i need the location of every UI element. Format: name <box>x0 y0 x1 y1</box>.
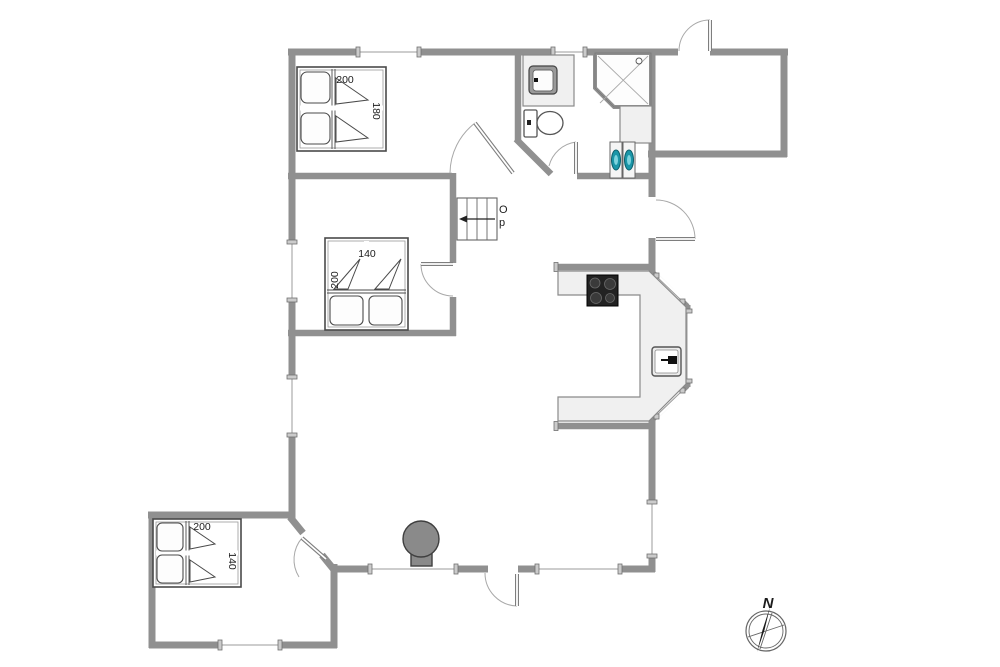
burner <box>605 279 616 290</box>
kitchen-sink <box>652 347 681 376</box>
kitchen <box>558 271 686 421</box>
door-main-entrance <box>485 573 517 606</box>
stairs-up-label-1: O <box>499 204 508 216</box>
north-label: N <box>763 595 775 612</box>
window <box>356 47 421 57</box>
faucet <box>668 356 677 364</box>
washer-dryer <box>610 142 635 178</box>
window <box>218 640 282 650</box>
bed-depth-label: 140 <box>226 552 238 570</box>
stairs-up-label-2: p <box>499 217 505 229</box>
window <box>535 564 622 574</box>
bed-depth-label: 200 <box>329 271 341 289</box>
stove-body <box>403 521 439 557</box>
burner <box>606 294 615 303</box>
door-top-right-room <box>679 20 710 51</box>
pillow <box>157 523 183 551</box>
annex-bedroom: 200 140 <box>153 519 241 587</box>
pillow <box>369 296 402 325</box>
toilet <box>524 110 563 137</box>
pillow <box>330 296 363 325</box>
stairs: O p <box>457 198 508 240</box>
cooktop <box>587 275 618 306</box>
door-east-entrance <box>656 200 695 239</box>
bathroom-cabinet <box>620 106 652 143</box>
wall-end-cap <box>554 263 558 272</box>
bathroom <box>523 53 652 178</box>
window <box>647 500 657 558</box>
burner <box>591 293 602 304</box>
window <box>287 375 297 437</box>
burner <box>590 278 600 288</box>
shower-drain <box>636 58 642 64</box>
bed-width-label: 200 <box>336 74 354 86</box>
bathroom-sink <box>529 66 557 94</box>
kitchen-counter <box>558 271 686 421</box>
flush-button <box>527 120 531 125</box>
compass-cross-line <box>760 613 772 649</box>
floor-plan-canvas: 200 180 140 200 20 <box>0 0 1000 667</box>
faucet <box>534 78 538 82</box>
pillow <box>301 72 330 103</box>
bedroom-middle: 140 200 <box>325 238 408 330</box>
bed-width-label: 200 <box>193 521 211 533</box>
door-bedroom-mid <box>421 264 453 296</box>
compass: N <box>746 595 786 652</box>
exterior-walls <box>148 49 788 648</box>
door-bedroom-top <box>450 123 513 173</box>
window <box>287 240 297 302</box>
bed-width-label: 140 <box>358 248 376 260</box>
shower <box>595 53 651 107</box>
door-bathroom <box>549 142 576 174</box>
pillow <box>301 113 330 144</box>
pillow <box>157 555 183 583</box>
wood-stove <box>403 521 439 566</box>
bedroom-top-left: 200 180 <box>297 67 386 151</box>
wall-end-cap <box>554 422 558 431</box>
bed-depth-label: 180 <box>370 102 382 120</box>
